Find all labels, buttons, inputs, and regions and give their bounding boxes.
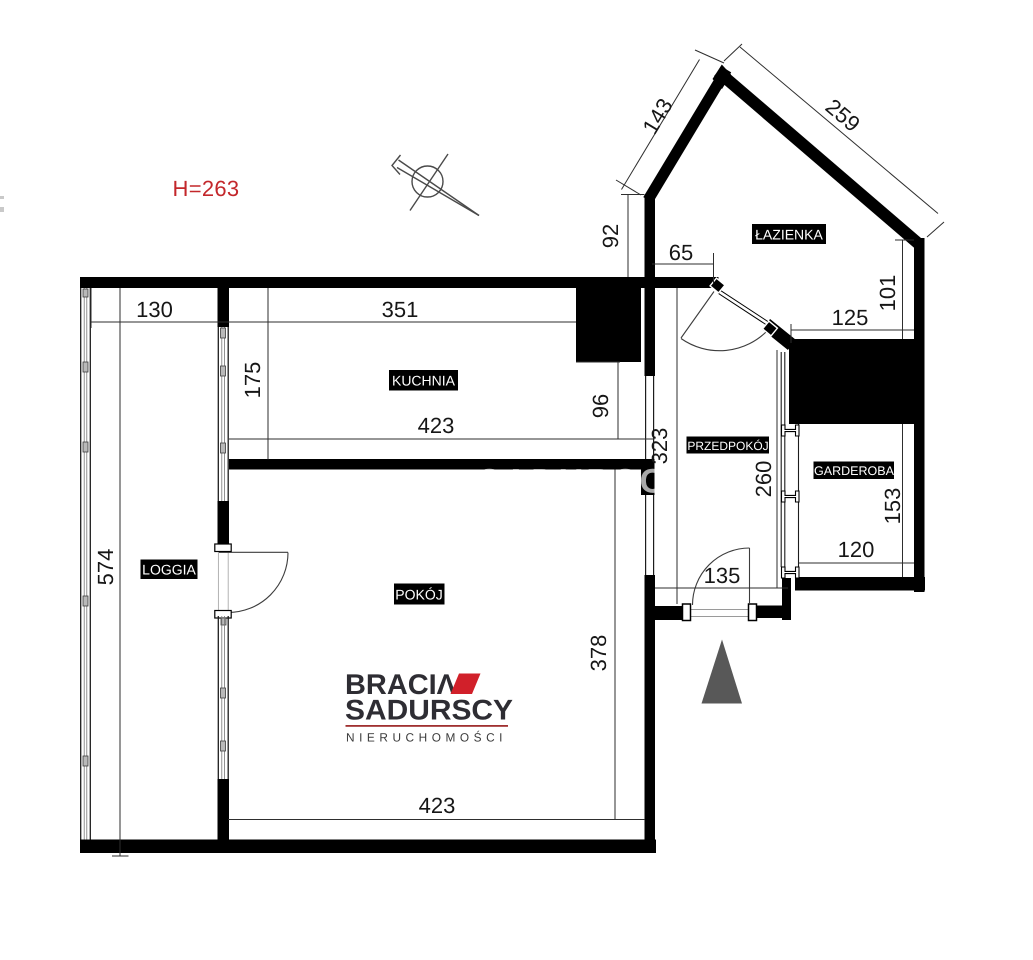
svg-text:260: 260 [751,461,776,498]
svg-text:SADURSCY: SADURSCY [478,463,693,501]
svg-text:LOGGIA: LOGGIA [142,562,196,578]
svg-text:92: 92 [598,224,623,248]
svg-text:351: 351 [382,297,419,322]
svg-text:423: 423 [418,413,455,438]
svg-text:153: 153 [880,488,905,525]
svg-text:ŁAZIENKA: ŁAZIENKA [755,227,823,243]
svg-text:101: 101 [875,275,900,312]
svg-text:GARDEROBA: GARDEROBA [814,464,895,478]
svg-text:125: 125 [832,305,869,330]
svg-text:H=263: H=263 [173,176,240,201]
svg-text:175: 175 [240,362,265,399]
svg-text:PRZEDPOKÓJ: PRZEDPOKÓJ [687,439,768,453]
svg-text:SADURSCY: SADURSCY [345,695,513,727]
svg-text:NIERUCHOMOŚCI: NIERUCHOMOŚCI [346,731,507,745]
svg-text:574: 574 [93,549,118,586]
svg-text:135: 135 [704,563,741,588]
svg-text:65: 65 [669,240,693,265]
svg-text:KUCHNIA: KUCHNIA [392,373,456,389]
svg-text:96: 96 [588,394,613,418]
svg-text:130: 130 [136,297,173,322]
svg-text:423: 423 [419,793,456,818]
svg-text:378: 378 [586,635,611,672]
svg-text:120: 120 [838,537,875,562]
svg-text:POKÓJ: POKÓJ [395,587,442,603]
svg-text:323: 323 [647,428,672,465]
